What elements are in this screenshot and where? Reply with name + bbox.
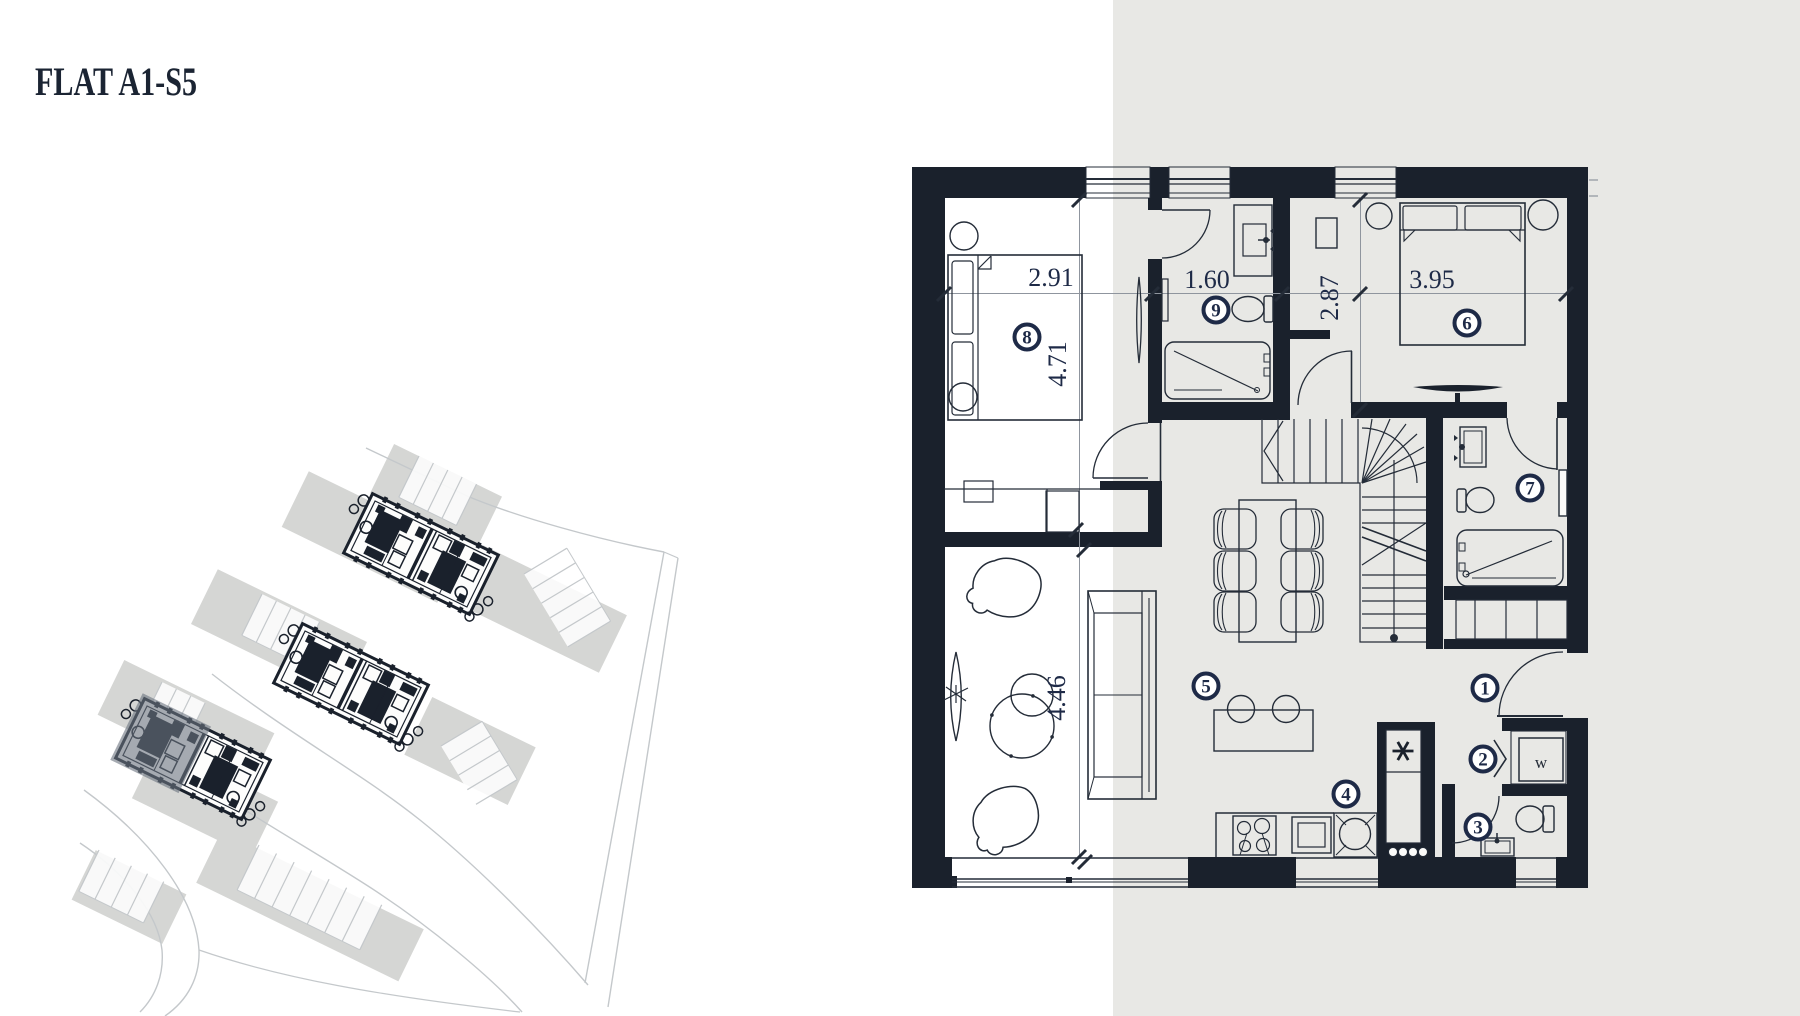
svg-text:2.91: 2.91 <box>1028 263 1074 292</box>
svg-text:2: 2 <box>1478 750 1488 771</box>
svg-text:4: 4 <box>1341 785 1351 806</box>
svg-text:3: 3 <box>1473 818 1483 839</box>
svg-text:9: 9 <box>1211 301 1221 322</box>
svg-text:5: 5 <box>1201 677 1211 698</box>
svg-text:2.87: 2.87 <box>1315 275 1344 321</box>
svg-text:8: 8 <box>1022 328 1032 349</box>
svg-text:1: 1 <box>1480 679 1490 700</box>
svg-text:3.95: 3.95 <box>1409 265 1455 294</box>
svg-text:w: w <box>1535 753 1548 772</box>
svg-text:7: 7 <box>1525 479 1535 500</box>
svg-text:6: 6 <box>1462 314 1472 335</box>
svg-text:4.46: 4.46 <box>1042 675 1071 721</box>
svg-text:4.71: 4.71 <box>1043 341 1072 387</box>
svg-text:FLAT A1-S5: FLAT A1-S5 <box>35 59 197 104</box>
svg-text:1.60: 1.60 <box>1184 265 1230 294</box>
